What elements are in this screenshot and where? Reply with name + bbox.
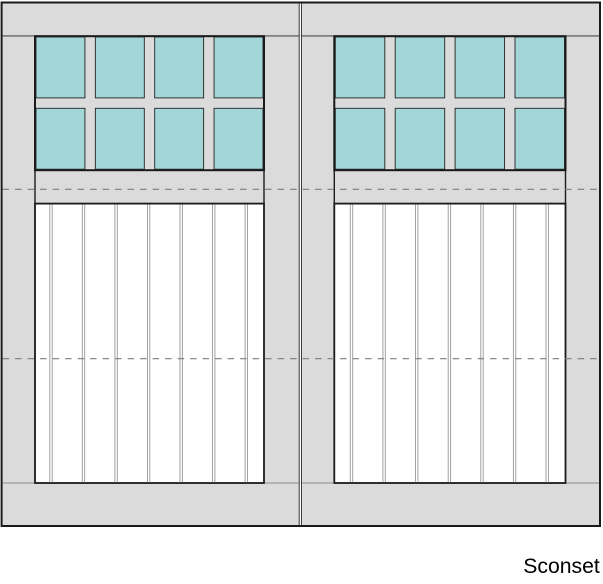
svg-text:Sconset: Sconset: [523, 555, 600, 578]
